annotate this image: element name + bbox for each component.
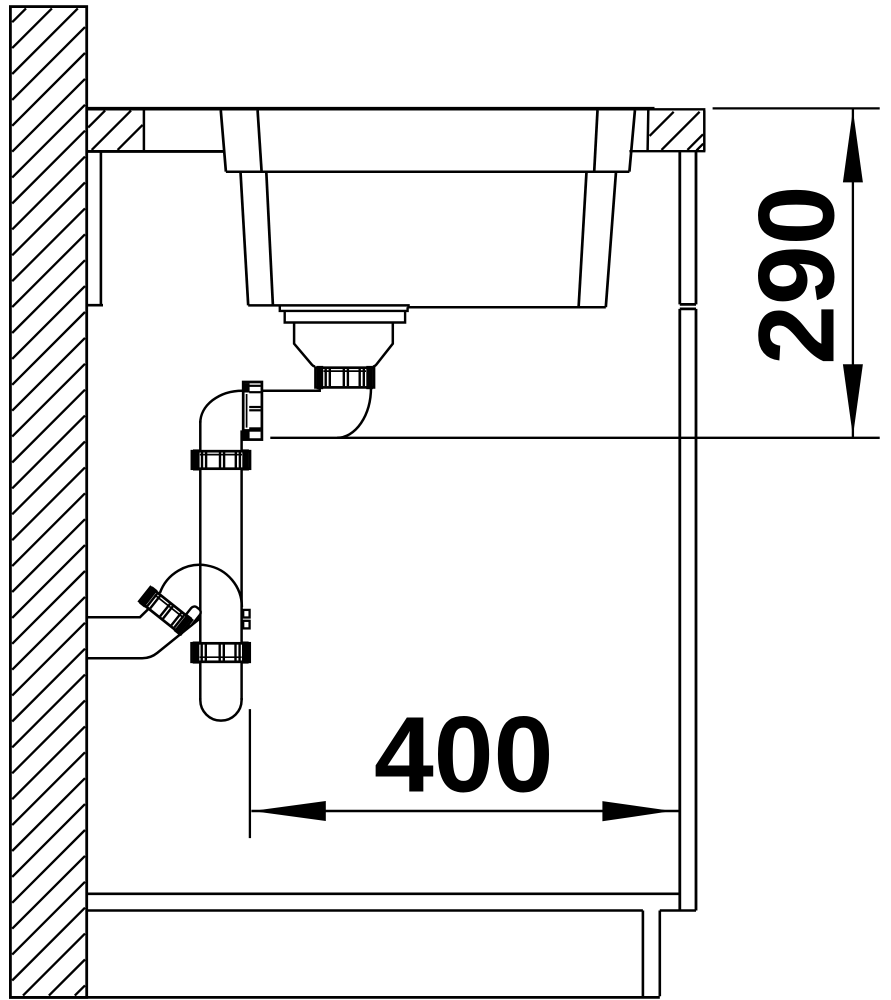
svg-text:400: 400 bbox=[374, 694, 553, 814]
svg-text:290: 290 bbox=[737, 186, 857, 365]
